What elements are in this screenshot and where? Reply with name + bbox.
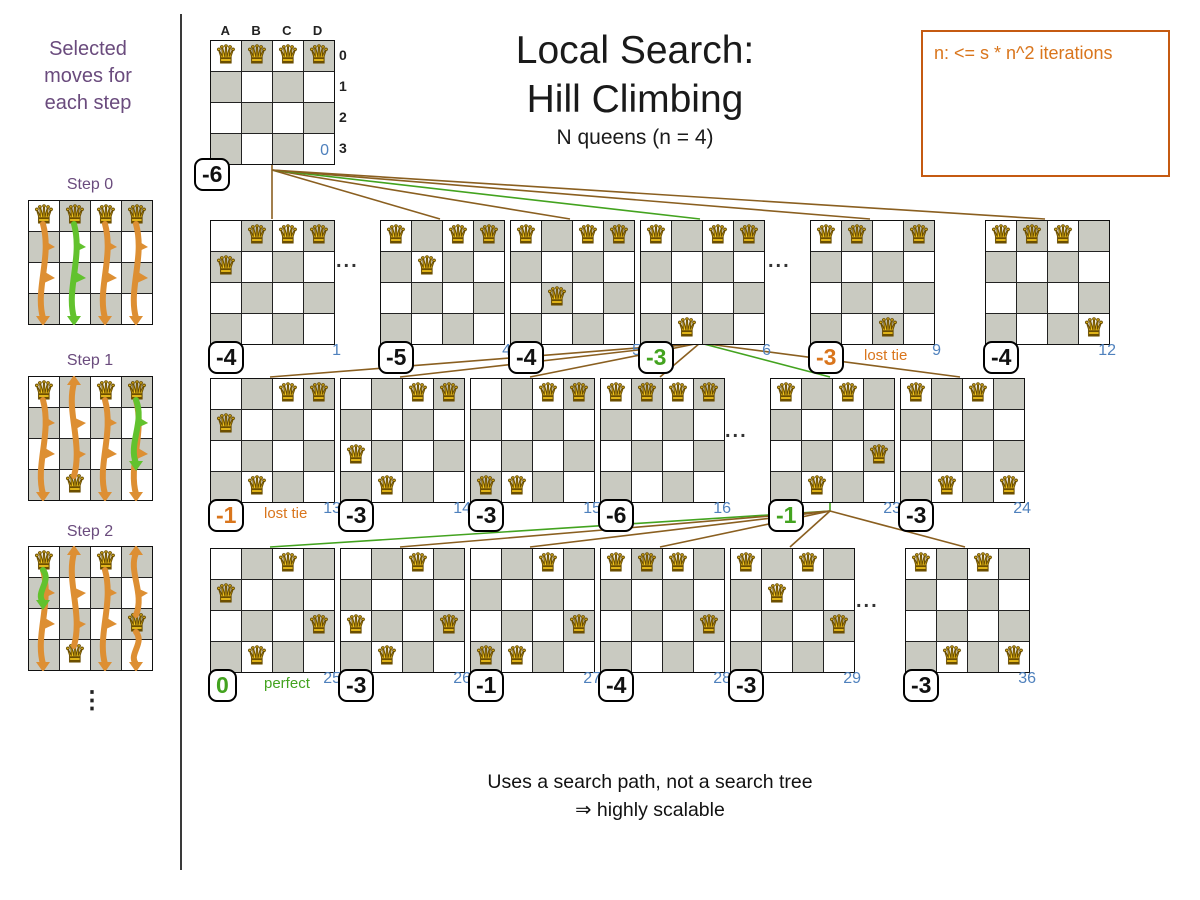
board-cell — [604, 252, 634, 282]
board-cell — [242, 103, 272, 133]
title-line-1: Local Search: — [516, 29, 754, 72]
board-cell — [341, 472, 371, 502]
queen-icon: ♛ — [605, 551, 627, 576]
board-cell — [474, 252, 504, 282]
board-cell — [502, 580, 532, 610]
queen-icon: ♛ — [478, 223, 500, 248]
board-cell: ♛ — [672, 314, 702, 344]
queen-icon: ♛ — [537, 381, 559, 406]
column-header-label: A — [210, 23, 241, 38]
board-cell — [122, 263, 152, 293]
board-cell: ♛ — [842, 221, 872, 251]
queen-icon: ♛ — [246, 43, 268, 68]
board-cell — [122, 640, 152, 670]
board-cell — [474, 283, 504, 313]
board-cell — [273, 283, 303, 313]
board-cell — [211, 549, 241, 579]
evaluated-move-line — [530, 343, 700, 377]
board-cell — [304, 252, 334, 282]
board-cell — [29, 470, 59, 500]
board-cell — [471, 379, 501, 409]
board-cell — [533, 642, 563, 672]
board-cell: ♛ — [304, 379, 334, 409]
board-cell — [242, 283, 272, 313]
queen-icon: ♛ — [438, 613, 460, 638]
board-cell: ♛ — [511, 221, 541, 251]
board-cell — [564, 410, 594, 440]
selected-move-line — [272, 170, 700, 219]
board-cell: ♛ — [564, 379, 594, 409]
queen-icon: ♛ — [636, 551, 658, 576]
board-cell: ♛ — [403, 549, 433, 579]
queen-icon: ♛ — [1003, 644, 1025, 669]
score-badge: -3 — [898, 499, 934, 532]
board-cell — [641, 283, 671, 313]
board-cell — [694, 472, 724, 502]
board-cell — [601, 611, 631, 641]
board-cell — [771, 472, 801, 502]
board-cell — [29, 232, 59, 262]
board-cell — [694, 441, 724, 471]
board-cell — [29, 294, 59, 324]
board-cell — [731, 642, 761, 672]
board-cell — [122, 294, 152, 324]
board-cell — [443, 252, 473, 282]
score-badge: -3 — [638, 341, 674, 374]
solution-board-12: ♛♛♛♛-412 — [985, 220, 1110, 345]
board-cell — [372, 441, 402, 471]
chess-board: ♛♛♛♛ — [210, 220, 335, 345]
queen-icon: ♛ — [308, 613, 330, 638]
board-cell — [304, 441, 334, 471]
chess-board: ♛♛♛♛ — [985, 220, 1110, 345]
queen-icon: ♛ — [608, 223, 630, 248]
board-index: 0 — [320, 142, 329, 160]
score-badge: -3 — [338, 499, 374, 532]
chess-board: ♛♛♛♛ — [905, 548, 1030, 673]
queen-icon: ♛ — [707, 223, 729, 248]
step-0-board: ♛♛♛♛ — [28, 200, 153, 325]
queen-icon: ♛ — [645, 223, 667, 248]
queen-icon: ♛ — [277, 381, 299, 406]
queen-icon: ♛ — [936, 474, 958, 499]
board-cell — [242, 134, 272, 164]
board-cell — [937, 580, 967, 610]
board-cell — [968, 580, 998, 610]
board-cell: ♛ — [601, 379, 631, 409]
queen-icon: ♛ — [568, 613, 590, 638]
chess-board: ♛♛♛♛ — [340, 548, 465, 673]
queen-icon: ♛ — [698, 381, 720, 406]
board-cell — [793, 611, 823, 641]
queen-icon: ♛ — [308, 223, 330, 248]
board-cell — [502, 441, 532, 471]
board-cell — [601, 410, 631, 440]
queen-icon: ♛ — [64, 203, 86, 228]
board-cell — [471, 580, 501, 610]
board-cell — [672, 221, 702, 251]
board-cell: ♛ — [906, 549, 936, 579]
board-cell — [122, 408, 152, 438]
queen-icon: ♛ — [1021, 223, 1043, 248]
column-header-label: C — [272, 23, 303, 38]
board-cell — [694, 410, 724, 440]
board-cell — [242, 379, 272, 409]
solution-board-1: ♛♛♛♛-41 — [210, 220, 335, 345]
queen-icon: ♛ — [215, 412, 237, 437]
board-cell — [904, 252, 934, 282]
more-steps-ellipsis: ⋮ — [80, 686, 104, 715]
queen-icon: ♛ — [64, 472, 86, 497]
board-cell — [211, 103, 241, 133]
board-cell — [372, 611, 402, 641]
board-cell: ♛ — [604, 221, 634, 251]
board-cell: ♛ — [60, 470, 90, 500]
board-cell: ♛ — [91, 547, 121, 577]
board-cell — [60, 547, 90, 577]
board-cell — [372, 580, 402, 610]
board-cell — [122, 232, 152, 262]
board-cell — [937, 611, 967, 641]
board-cell — [1017, 283, 1047, 313]
chess-board: ♛♛♛♛ — [470, 548, 595, 673]
board-cell — [904, 314, 934, 344]
queen-icon: ♛ — [667, 551, 689, 576]
row-header-label: 0 — [339, 40, 347, 71]
queen-icon: ♛ — [385, 223, 407, 248]
solution-board-5: ♛♛♛♛-45 — [510, 220, 635, 345]
board-cell — [471, 549, 501, 579]
board-cell — [273, 611, 303, 641]
board-cell — [771, 410, 801, 440]
iterations-note-text: n: <= s * n^2 iterations — [934, 43, 1168, 64]
board-cell — [122, 470, 152, 500]
board-cell — [932, 410, 962, 440]
score-badge: -6 — [194, 158, 230, 191]
board-cell — [601, 642, 631, 672]
board-cell: ♛ — [564, 611, 594, 641]
board-cell — [963, 410, 993, 440]
board-cell — [703, 314, 733, 344]
board-cell — [403, 642, 433, 672]
queen-icon: ♛ — [735, 551, 757, 576]
board-cell — [663, 441, 693, 471]
board-cell — [60, 294, 90, 324]
board-cell — [963, 441, 993, 471]
score-badge: -3 — [808, 341, 844, 374]
board-cell — [273, 580, 303, 610]
score-badge: -5 — [378, 341, 414, 374]
queen-icon: ♛ — [277, 223, 299, 248]
board-cell — [60, 609, 90, 639]
queen-icon: ♛ — [636, 381, 658, 406]
board-tag: lost tie — [864, 347, 907, 364]
board-cell — [242, 611, 272, 641]
queen-icon: ♛ — [846, 223, 868, 248]
board-cell — [762, 611, 792, 641]
queen-icon: ♛ — [308, 43, 330, 68]
board-cell — [273, 72, 303, 102]
board-cell — [564, 580, 594, 610]
board-cell — [304, 314, 334, 344]
board-index: 24 — [1013, 500, 1031, 518]
board-cell: ♛ — [29, 547, 59, 577]
board-cell — [663, 642, 693, 672]
board-cell — [304, 642, 334, 672]
board-cell — [474, 314, 504, 344]
board-cell: ♛ — [304, 41, 334, 71]
queen-icon: ♛ — [277, 43, 299, 68]
board-cell — [811, 314, 841, 344]
queen-icon: ♛ — [308, 381, 330, 406]
chess-board: ♛♛♛♛ — [600, 378, 725, 503]
queen-icon: ♛ — [277, 551, 299, 576]
board-cell — [304, 580, 334, 610]
solution-board-26: ♛♛♛♛-326 — [340, 548, 465, 673]
score-badge: -4 — [208, 341, 244, 374]
board-cell — [533, 472, 563, 502]
solution-board-24: ♛♛♛♛-324 — [900, 378, 1025, 503]
board-cell — [802, 410, 832, 440]
board-cell — [304, 103, 334, 133]
queen-icon: ♛ — [33, 203, 55, 228]
board-cell: ♛ — [873, 314, 903, 344]
chess-board: ♛♛♛♛ — [640, 220, 765, 345]
board-cell — [122, 547, 152, 577]
board-cell — [211, 72, 241, 102]
board-cell — [842, 314, 872, 344]
queen-icon: ♛ — [475, 644, 497, 669]
row-header-label: 2 — [339, 102, 347, 133]
chess-board: ♛♛♛♛ — [810, 220, 935, 345]
board-cell: ♛ — [341, 441, 371, 471]
step-1-board: ♛♛♛♛ — [28, 376, 153, 501]
board-cell — [564, 549, 594, 579]
board-cell — [873, 283, 903, 313]
score-badge: -1 — [768, 499, 804, 532]
board-tag: perfect — [264, 675, 310, 692]
board-cell — [937, 549, 967, 579]
queen-icon: ♛ — [416, 254, 438, 279]
board-cell — [372, 379, 402, 409]
board-cell — [242, 410, 272, 440]
footer-text: Uses a search path, not a search tree ⇒ … — [250, 768, 1050, 824]
board-cell — [573, 252, 603, 282]
score-badge: -1 — [468, 669, 504, 702]
board-cell — [434, 441, 464, 471]
queen-icon: ♛ — [877, 316, 899, 341]
solution-board-9: ♛♛♛♛-39lost tie — [810, 220, 935, 345]
board-cell — [502, 611, 532, 641]
board-cell: ♛ — [211, 410, 241, 440]
board-cell — [502, 549, 532, 579]
board-cell: ♛ — [694, 379, 724, 409]
board-cell — [564, 441, 594, 471]
board-cell: ♛ — [434, 379, 464, 409]
board-cell — [211, 379, 241, 409]
solution-board-29: ♛♛♛♛-329 — [730, 548, 855, 673]
solution-board-36: ♛♛♛♛-336 — [905, 548, 1030, 673]
board-tag: lost tie — [264, 505, 307, 522]
board-cell — [91, 263, 121, 293]
queen-icon: ♛ — [806, 474, 828, 499]
queen-icon: ♛ — [345, 613, 367, 638]
board-cell: ♛ — [533, 549, 563, 579]
board-cell — [273, 410, 303, 440]
board-cell: ♛ — [273, 41, 303, 71]
board-cell — [29, 640, 59, 670]
board-cell — [793, 580, 823, 610]
board-cell — [304, 72, 334, 102]
board-cell — [122, 439, 152, 469]
board-cell — [968, 642, 998, 672]
board-cell: ♛ — [242, 221, 272, 251]
board-cell — [734, 283, 764, 313]
board-cell — [573, 283, 603, 313]
board-cell — [29, 609, 59, 639]
board-cell — [471, 410, 501, 440]
board-index: 9 — [932, 342, 941, 360]
queen-icon: ♛ — [407, 381, 429, 406]
score-badge: -3 — [468, 499, 504, 532]
board-cell — [901, 410, 931, 440]
board-cell — [601, 441, 631, 471]
board-cell: ♛ — [864, 441, 894, 471]
board-cell — [703, 252, 733, 282]
board-cell — [1017, 252, 1047, 282]
evaluated-move-line — [272, 170, 570, 219]
board-cell — [811, 252, 841, 282]
board-cell — [632, 642, 662, 672]
board-cell: ♛ — [986, 221, 1016, 251]
board-cell — [91, 578, 121, 608]
board-cell — [901, 472, 931, 502]
board-cell — [873, 252, 903, 282]
board-cell — [211, 441, 241, 471]
board-cell — [412, 314, 442, 344]
board-cell — [434, 549, 464, 579]
board-cell: ♛ — [793, 549, 823, 579]
board-cell — [731, 580, 761, 610]
column-header-label: D — [302, 23, 333, 38]
board-cell — [842, 252, 872, 282]
solution-board-14: ♛♛♛♛-314 — [340, 378, 465, 503]
board-cell — [906, 642, 936, 672]
board-cell: ♛ — [91, 201, 121, 231]
board-cell — [304, 134, 334, 164]
board-cell — [864, 472, 894, 502]
board-cell — [242, 580, 272, 610]
board-cell — [29, 263, 59, 293]
board-cell: ♛ — [412, 252, 442, 282]
board-cell: ♛ — [771, 379, 801, 409]
board-cell: ♛ — [341, 611, 371, 641]
board-cell — [762, 642, 792, 672]
score-badge: 0 — [208, 669, 237, 702]
board-cell: ♛ — [372, 642, 402, 672]
footer-line-1: Uses a search path, not a search tree — [487, 771, 812, 793]
board-cell — [122, 578, 152, 608]
board-cell — [802, 441, 832, 471]
chess-board: ♛♛♛♛ — [340, 378, 465, 503]
board-cell — [273, 103, 303, 133]
row-headers: 0123 — [339, 40, 347, 163]
ellipsis: ... — [856, 590, 879, 613]
board-cell: ♛ — [824, 611, 854, 641]
board-cell — [273, 472, 303, 502]
board-cell: ♛ — [802, 472, 832, 502]
board-cell: ♛ — [937, 642, 967, 672]
board-cell — [1017, 314, 1047, 344]
board-cell — [403, 410, 433, 440]
chess-board: ♛♛♛♛ — [600, 548, 725, 673]
chess-board: ♛♛♛♛ — [900, 378, 1025, 503]
board-cell — [731, 611, 761, 641]
board-cell — [802, 379, 832, 409]
queen-icon: ♛ — [766, 582, 788, 607]
board-cell — [211, 314, 241, 344]
queen-icon: ♛ — [407, 551, 429, 576]
board-cell: ♛ — [60, 640, 90, 670]
board-cell — [542, 314, 572, 344]
board-cell — [811, 283, 841, 313]
board-cell — [403, 611, 433, 641]
chess-board: ♛♛♛♛ — [510, 220, 635, 345]
board-cell — [403, 580, 433, 610]
board-cell: ♛ — [811, 221, 841, 251]
board-cell — [91, 294, 121, 324]
column-header-label: B — [241, 23, 272, 38]
board-cell — [932, 441, 962, 471]
board-cell — [434, 580, 464, 610]
board-cell — [986, 314, 1016, 344]
board-cell — [672, 252, 702, 282]
queen-icon: ♛ — [95, 549, 117, 574]
board-cell — [91, 470, 121, 500]
queen-icon: ♛ — [246, 223, 268, 248]
board-cell: ♛ — [533, 379, 563, 409]
board-cell — [833, 472, 863, 502]
board-cell: ♛ — [901, 379, 931, 409]
queen-icon: ♛ — [605, 381, 627, 406]
board-cell — [381, 314, 411, 344]
chess-board: ♛♛♛♛ — [730, 548, 855, 673]
footer-line-2: ⇒ highly scalable — [575, 799, 725, 821]
row-header-label: 3 — [339, 132, 347, 163]
board-cell: ♛ — [641, 221, 671, 251]
board-index: 6 — [762, 342, 771, 360]
board-cell — [381, 283, 411, 313]
chess-board: ♛♛♛♛ — [210, 378, 335, 503]
queen-icon: ♛ — [775, 381, 797, 406]
board-cell: ♛ — [304, 221, 334, 251]
board-cell — [502, 410, 532, 440]
board-cell — [663, 410, 693, 440]
queen-icon: ♛ — [506, 644, 528, 669]
queen-icon: ♛ — [667, 381, 689, 406]
board-cell — [968, 611, 998, 641]
board-cell: ♛ — [122, 609, 152, 639]
board-cell: ♛ — [211, 252, 241, 282]
board-cell — [372, 549, 402, 579]
board-cell — [932, 379, 962, 409]
board-cell — [511, 252, 541, 282]
board-cell — [604, 283, 634, 313]
queen-icon: ♛ — [905, 381, 927, 406]
board-cell — [564, 472, 594, 502]
board-cell: ♛ — [542, 283, 572, 313]
board-cell — [304, 283, 334, 313]
